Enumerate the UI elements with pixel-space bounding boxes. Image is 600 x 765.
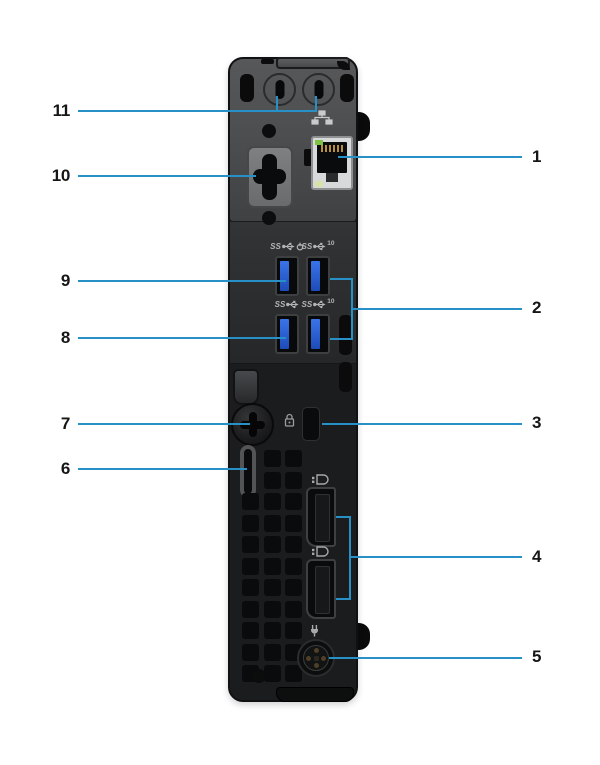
- displayport-2: [306, 559, 336, 619]
- ethernet-clip: [304, 149, 311, 166]
- antenna-connector-1: [263, 73, 296, 106]
- callout-line-2: [351, 308, 522, 310]
- mounting-slot-left: [240, 74, 254, 102]
- vent-cell: [264, 472, 281, 489]
- cable-hook: [233, 369, 259, 405]
- usb-trident-glyph: [282, 242, 295, 251]
- usb-smartpower-icon: SS: [270, 241, 304, 252]
- power-pin: [314, 648, 319, 653]
- usb-ss-label: SS: [302, 242, 313, 251]
- callout-number-1: 1: [532, 148, 564, 166]
- vent-cell: [285, 622, 302, 639]
- callout-number-2: 2: [532, 299, 564, 317]
- vent-cell: [264, 515, 281, 532]
- callout-line-11-stub-left: [276, 96, 278, 112]
- callout-number-9: 9: [38, 272, 70, 290]
- plus-cutout-horizontal: [253, 169, 286, 184]
- callout-number-3: 3: [532, 414, 564, 432]
- vent-cell: [242, 558, 259, 575]
- displayport-slot: [315, 494, 330, 542]
- vent-grid: [242, 450, 302, 682]
- vent-cell: [264, 536, 281, 553]
- vent-cell: [242, 601, 259, 618]
- vent-cell: [264, 558, 281, 575]
- callout-line-10: [78, 175, 256, 177]
- power-plug-icon: [307, 624, 322, 637]
- kensington-lock-icon: [283, 413, 296, 428]
- usb-trident-glyph: [313, 242, 326, 251]
- callout-line-11-stub-right: [315, 96, 317, 112]
- mounting-slot-right: [340, 74, 354, 102]
- usb-port-10gbps-bottom: [306, 314, 330, 354]
- callout-line-4-stub-top: [336, 516, 351, 518]
- displayport-icon: [311, 545, 329, 557]
- network-icon: [311, 110, 333, 125]
- callout-number-10: 10: [38, 167, 70, 185]
- usb-10gbps-icon: SS 10: [301, 241, 335, 252]
- displayport-slot: [315, 566, 330, 614]
- ethernet-led-amber: [315, 181, 323, 187]
- callout-line-1: [338, 156, 522, 158]
- displayport-icon: [311, 473, 329, 485]
- top-slit: [261, 59, 274, 64]
- callout-number-6: 6: [38, 460, 70, 478]
- displayport-1: [306, 487, 336, 547]
- vent-cell: [264, 644, 281, 661]
- callout-line-5: [329, 657, 522, 659]
- vent-cell: [264, 622, 281, 639]
- usb-tongue: [280, 261, 289, 291]
- ethernet-pins: [321, 145, 343, 152]
- vent-cell: [242, 579, 259, 596]
- callout-line-4: [349, 556, 522, 558]
- right-vent-slot-2: [339, 362, 352, 392]
- callout-line-2-stub-top: [330, 278, 353, 280]
- usb-ss-icon: SS: [270, 299, 304, 310]
- ethernet-tab: [326, 173, 338, 182]
- vent-cell: [242, 536, 259, 553]
- vent-cell: [242, 515, 259, 532]
- usb-tongue: [280, 319, 289, 349]
- callout-number-4: 4: [532, 548, 564, 566]
- usb-speed-label: 10: [327, 298, 334, 305]
- power-center-pin: [314, 656, 319, 661]
- callout-line-11: [78, 110, 317, 112]
- usb-port-standard: [275, 314, 299, 354]
- screw-hole-bottom: [262, 211, 276, 225]
- vent-cell: [264, 493, 281, 510]
- usb-trident-glyph: [313, 300, 326, 309]
- callout-number-5: 5: [532, 648, 564, 666]
- usb-ss-label: SS: [275, 300, 286, 309]
- vent-cell: [242, 493, 259, 510]
- vent-cell: [264, 601, 281, 618]
- kensington-lock-slot: [302, 407, 320, 441]
- vent-cell: [285, 493, 302, 510]
- usb-trident-glyph: [286, 300, 299, 309]
- usb-port-10gbps-top: [306, 256, 330, 296]
- usb-10gbps-icon: SS 10: [301, 299, 335, 310]
- callout-line-8: [78, 337, 286, 339]
- vent-cell: [242, 644, 259, 661]
- callout-line-9: [78, 280, 286, 282]
- vent-cell: [285, 579, 302, 596]
- usb-ss-label: SS: [302, 300, 313, 309]
- callout-number-8: 8: [38, 329, 70, 347]
- usb-tongue: [311, 261, 320, 291]
- usb-port-smartpower: [275, 256, 299, 296]
- callout-number-7: 7: [38, 415, 70, 433]
- callout-line-2-stub-bottom: [330, 338, 353, 340]
- callout-line-7: [78, 423, 250, 425]
- antenna-connector-2: [302, 73, 335, 106]
- bottom-screw-hole: [252, 669, 266, 683]
- vent-cell: [285, 601, 302, 618]
- vent-cell: [285, 558, 302, 575]
- usb-ss-label: SS: [270, 242, 281, 251]
- vent-cell: [264, 450, 281, 467]
- power-pin: [321, 656, 326, 661]
- panel-seam: [230, 363, 356, 364]
- rear-view-diagram: SS SS 10 SS: [0, 0, 600, 765]
- callout-line-3: [322, 423, 522, 425]
- callout-line-4-stub-bottom: [336, 598, 351, 600]
- vent-cell: [264, 665, 281, 682]
- power-pin: [314, 663, 319, 668]
- vent-cell: [285, 450, 302, 467]
- panel-seam: [230, 221, 356, 222]
- callout-line-2-bracket: [351, 278, 353, 340]
- screw-hole-top: [262, 124, 276, 138]
- usb-speed-label: 10: [327, 240, 334, 247]
- vent-cell: [264, 579, 281, 596]
- vent-cell: [285, 472, 302, 489]
- vent-cell: [285, 536, 302, 553]
- vent-cell: [285, 515, 302, 532]
- usb-tongue: [311, 319, 320, 349]
- vent-cell: [242, 622, 259, 639]
- callout-line-4-bracket: [349, 516, 351, 600]
- callout-line-6: [78, 468, 247, 470]
- ethernet-led-green: [315, 140, 323, 145]
- power-pin: [306, 656, 311, 661]
- bottom-stand-tab: [276, 687, 354, 702]
- callout-number-11: 11: [38, 102, 70, 120]
- ethernet-port: [311, 136, 353, 190]
